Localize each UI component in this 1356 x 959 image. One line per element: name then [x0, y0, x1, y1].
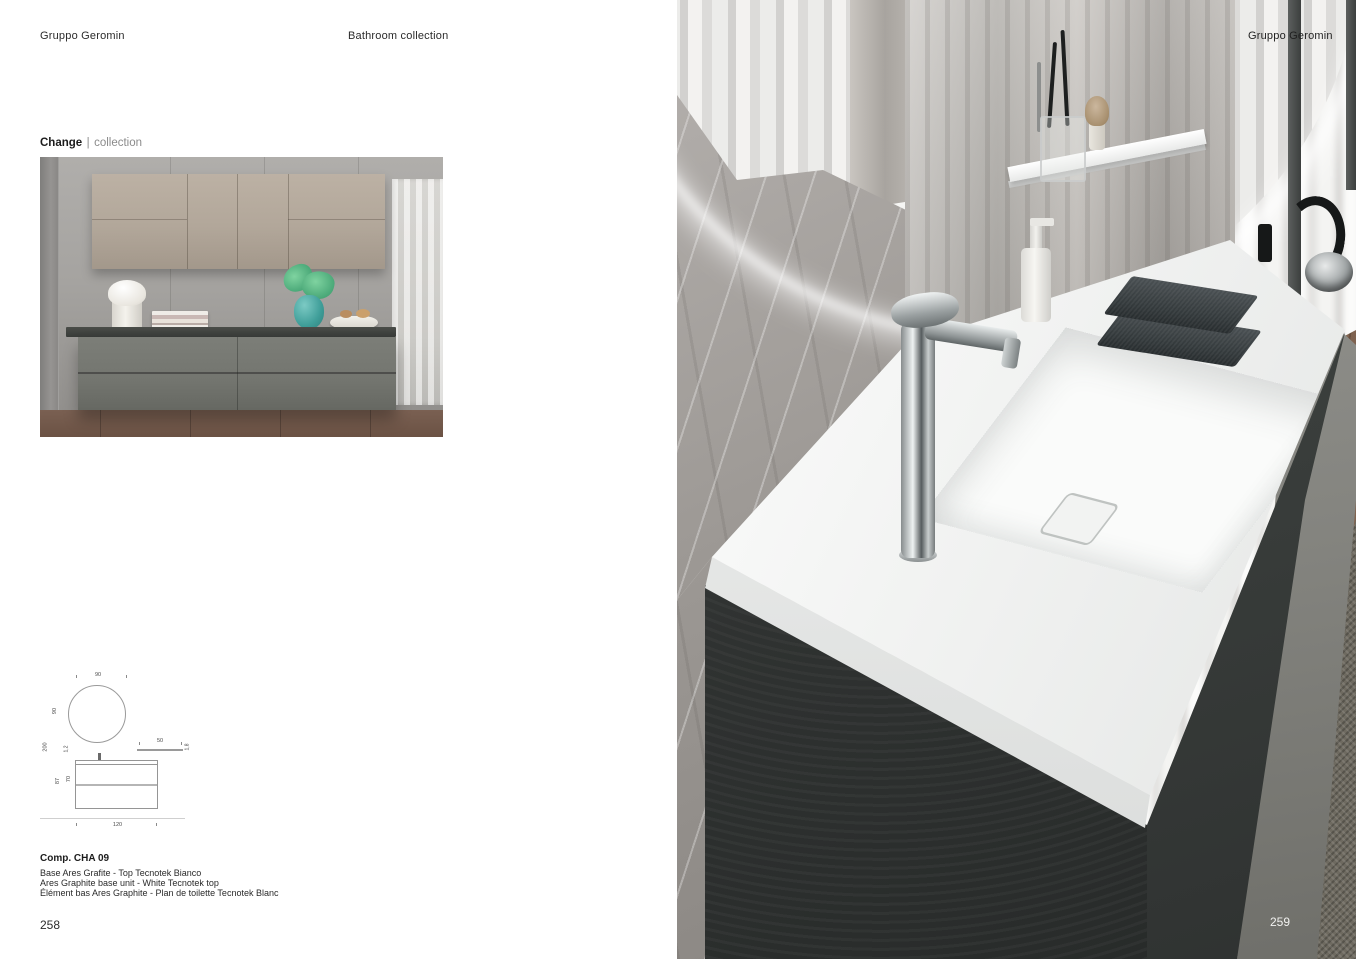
faucet-body — [901, 322, 935, 558]
photo-glass-partition — [40, 157, 59, 437]
vanity-countertop — [66, 327, 396, 337]
wall-cabinet — [92, 174, 385, 269]
collection-suffix: collection — [94, 137, 142, 149]
drawing-floor-line — [40, 818, 185, 819]
dim-floor-to-top: 87 — [55, 778, 61, 784]
black-bottle — [1258, 224, 1272, 262]
dim-base-height: 70 — [66, 776, 72, 782]
drawing-shelf-line — [137, 749, 183, 751]
cabinet-door-seam — [187, 174, 188, 269]
composition-caption: Base Ares Grafite - Top Tecnotek Bianco … — [40, 869, 278, 898]
dim-tick — [181, 742, 182, 745]
soap-dispenser-neck — [1030, 222, 1042, 250]
dim-top-thickness: 1,2 — [63, 746, 69, 753]
left-page: Gruppo Geromin Bathroom collection Chang… — [0, 0, 677, 959]
header-brand-left: Gruppo Geromin — [40, 30, 125, 42]
window-frame-edge — [1346, 0, 1356, 190]
page-number-left: 258 — [40, 918, 60, 932]
photo-window — [392, 179, 443, 405]
floor-plank-seam — [280, 410, 281, 437]
teal-vase — [294, 295, 324, 329]
page-number-right: 259 — [1270, 915, 1290, 929]
dim-tick — [76, 823, 77, 826]
dim-tick — [76, 675, 77, 678]
caption-french: Élément bas Ares Graphite - Plan de toil… — [40, 889, 278, 899]
shaving-brush-bristles — [1085, 96, 1109, 126]
dim-shelf-depth: 50 — [145, 738, 175, 744]
collection-name: Change — [40, 137, 82, 149]
cabinet-door-seam — [288, 174, 289, 269]
collection-title: Change | collection — [40, 133, 142, 151]
cabinet-door-seam — [92, 219, 187, 220]
right-page-photo: Gruppo Geromin 259 — [677, 0, 1356, 959]
header-brand-right: Gruppo Geromin — [1248, 30, 1333, 42]
cabinet-door-seam — [237, 174, 238, 269]
product-photo-left — [40, 157, 443, 437]
soap-dispenser-pump — [1030, 218, 1054, 226]
floor-plank-seam — [370, 410, 371, 437]
dim-tick — [139, 742, 140, 745]
drawing-drawer-seam — [76, 784, 157, 786]
drawing-base-unit — [75, 764, 158, 809]
dim-tick — [126, 675, 127, 678]
soap-dispenser-bottle — [1021, 248, 1051, 322]
table-lamp-shade — [108, 280, 146, 306]
cabinet-door-seam — [288, 219, 385, 220]
tray-item — [340, 310, 352, 318]
collection-separator: | — [87, 137, 90, 149]
tray-item — [356, 309, 370, 318]
catalog-spread: Gruppo Geromin Bathroom collection Chang… — [0, 0, 1356, 959]
dim-base-width: 120 — [90, 822, 145, 828]
dim-tick — [156, 823, 157, 826]
vanity-base-unit — [78, 337, 396, 410]
floor-plank-seam — [100, 410, 101, 437]
technical-drawing: 90 90 200 1,2 87 70 50 1,8 120 — [40, 672, 220, 838]
composition-code: Comp. CHA 09 — [40, 853, 109, 864]
dim-shelf-thickness: 1,8 — [184, 744, 190, 751]
drawing-mirror-circle — [68, 685, 126, 743]
header-collection-title: Bathroom collection — [348, 30, 448, 42]
dim-mirror-height: 90 — [52, 708, 58, 714]
drawing-faucet — [98, 753, 101, 760]
dim-mirror-width: 90 — [78, 672, 118, 678]
glass-tumbler — [1040, 116, 1086, 182]
steel-bowl — [1305, 252, 1353, 292]
dim-total-height: 200 — [43, 742, 49, 751]
floor-plank-seam — [190, 410, 191, 437]
